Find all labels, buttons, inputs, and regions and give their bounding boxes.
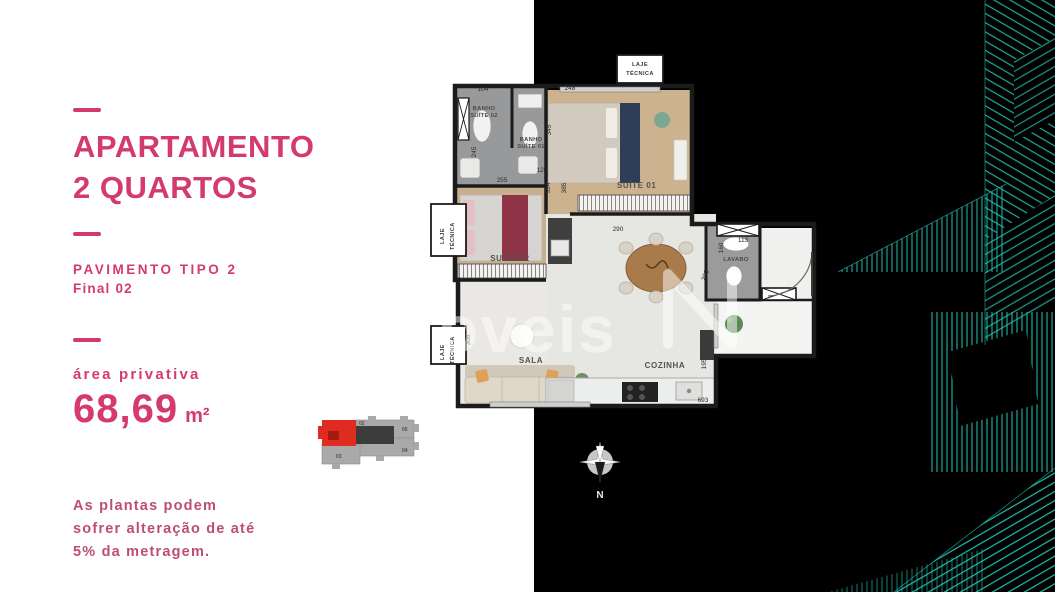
pouf — [654, 112, 670, 128]
wardrobe-suite02 — [458, 264, 546, 278]
dim-245: 245 — [471, 146, 478, 157]
laje-label: LAJE — [632, 62, 648, 68]
dim-255: 255 — [497, 177, 508, 184]
suite01-label: SUÍTE 01 — [617, 181, 656, 190]
key-plan-unit-05-label: 05 — [402, 427, 408, 433]
key-plan: 02 05 04 03 — [316, 410, 424, 472]
compass-north-label: N — [596, 490, 603, 501]
banho-suite02-line2: SUÍTE 02 — [470, 111, 498, 119]
dim-120: 120 — [537, 167, 548, 174]
unit-final-label: Final 02 — [73, 281, 314, 296]
accent-dash — [73, 108, 101, 112]
dim-290: 290 — [613, 226, 624, 233]
title-line1: APARTAMENTO — [73, 126, 314, 167]
vent-shaft — [717, 224, 759, 236]
title-block: APARTAMENTO 2 QUARTOS PAVIMENTO TIPO 2 F… — [73, 108, 314, 296]
page: APARTAMENTO 2 QUARTOS PAVIMENTO TIPO 2 F… — [0, 0, 1055, 592]
window — [490, 402, 590, 407]
dim-693: 693 — [698, 397, 709, 404]
title-line2: 2 QUARTOS — [73, 167, 314, 208]
dim-160: 160 — [718, 242, 725, 253]
banho-suite01-line1: BANHO — [520, 137, 543, 143]
tecnica-label: TÉCNICA — [626, 69, 654, 77]
tecnica-label: TÉCNICA — [448, 222, 456, 250]
compass-rose: N — [580, 442, 620, 501]
dim-104: 104 — [478, 86, 489, 93]
area-label: área privativa — [73, 366, 210, 383]
private-area-block: área privativa 68,69 m² — [73, 338, 210, 432]
key-plan-unit-02-label: 02 — [359, 421, 365, 427]
key-plan-unit-04-label: 04 — [402, 448, 408, 454]
dim-248: 248 — [565, 85, 576, 92]
dim-113: 113 — [738, 237, 749, 244]
lavabo-label: LAVABO — [723, 257, 749, 263]
floor-type-label: PAVIMENTO TIPO 2 — [73, 262, 314, 277]
dim-385: 385 — [561, 182, 568, 193]
suite02-label: SUÍTE 02 — [490, 254, 529, 263]
wardrobe-suite01 — [578, 195, 690, 211]
disclaimer-text: As plantas podem sofrer alteração de até… — [73, 495, 258, 564]
laje-label: LAJE — [440, 228, 446, 244]
cozinha-label: COZINHA — [645, 361, 686, 370]
watermark-text: oveis — [438, 292, 617, 366]
key-plan-highlighted-unit — [318, 420, 356, 446]
key-plan-unit-03-label: 03 — [336, 454, 342, 460]
accent-dash — [73, 338, 101, 342]
dim-345: 345 — [546, 124, 553, 135]
accent-dash — [73, 232, 101, 236]
dim-324: 324 — [545, 182, 552, 193]
floor-plan-image: LAJE TÉCNICA LAJE TÉCNICA LAJE TÉCNICA B… — [430, 48, 822, 508]
banho-suite01-line2: SUÍTE 01 — [517, 142, 545, 150]
key-plan-footprint: 02 05 04 03 — [318, 416, 419, 469]
banho-suite02-line1: BANHO — [473, 106, 496, 112]
page-title: APARTAMENTO 2 QUARTOS — [73, 126, 314, 208]
area-value: 68,69 — [73, 387, 178, 432]
window-hatch — [458, 98, 469, 140]
dim-195: 195 — [701, 358, 708, 369]
area-unit: m² — [185, 405, 209, 428]
